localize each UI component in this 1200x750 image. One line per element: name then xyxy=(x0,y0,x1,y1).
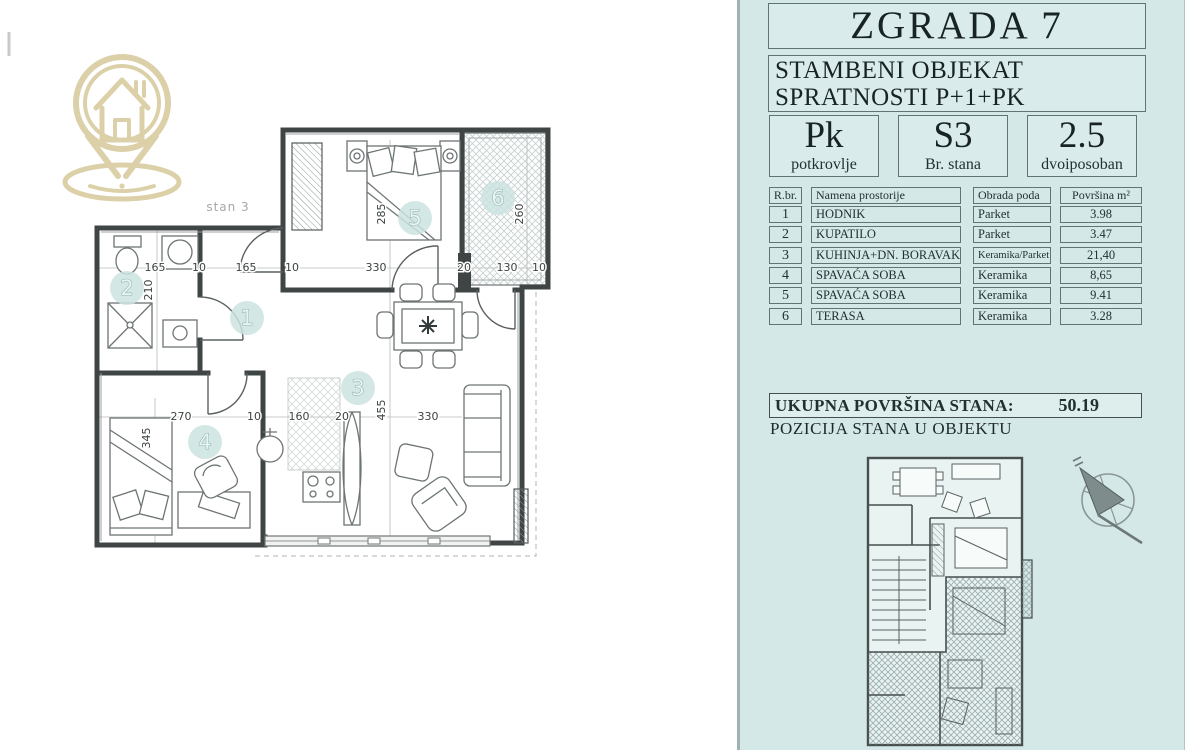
room-marker-number: 6 xyxy=(491,186,504,210)
legend-row-area-3: 21,40 xyxy=(1060,247,1142,264)
bedroom4-furniture xyxy=(110,418,250,535)
legend-row-name-6: TERASA xyxy=(811,308,961,325)
building-subtitle-box: STAMBENI OBJEKAT SPRATNOSTI P+1+PK xyxy=(768,55,1146,112)
stat-room-count-value: 2.5 xyxy=(1028,116,1136,156)
dimension-label-345: 345 xyxy=(140,428,153,449)
pillar-hatched xyxy=(514,489,528,543)
dimension-label-165: 165 xyxy=(145,261,166,274)
legend-header-namena: Namena prostorije xyxy=(811,187,961,204)
room-marker-number: 5 xyxy=(408,206,421,230)
room-markers: 123456 xyxy=(110,181,515,459)
stat-floor-label: potkrovlje xyxy=(770,156,878,173)
dimension-label-330: 330 xyxy=(418,410,439,423)
dimension-lines xyxy=(97,135,548,543)
dimension-label-10: 10 xyxy=(247,410,261,423)
legend-header-obrada: Obrada poda xyxy=(973,187,1051,204)
legend-row-name-5: SPAVAĆA SOBA xyxy=(811,287,961,304)
stat-apartment-number: S3 Br. stana xyxy=(898,115,1008,177)
room-marker-2: 2 xyxy=(110,271,144,305)
kitchen-tile-floor xyxy=(288,378,340,470)
legend-row-num-6: 6 xyxy=(769,308,802,325)
legend-row-num-3: 3 xyxy=(769,247,802,264)
position-label: POZICIJA STANA U OBJEKTU xyxy=(770,419,1012,439)
dimension-label-20: 20 xyxy=(335,410,349,423)
legend-row-area-6: 3.28 xyxy=(1060,308,1142,325)
dimension-label-260: 260 xyxy=(513,204,526,225)
terrace-area xyxy=(464,133,546,285)
legend-row-area-2: 3.47 xyxy=(1060,226,1142,243)
building-title-box: ZGRADA 7 xyxy=(768,3,1146,49)
balcony-window xyxy=(265,536,490,546)
dimension-label-10: 10 xyxy=(532,261,546,274)
legend-row-num-4: 4 xyxy=(769,267,802,284)
legend-row-num-5: 5 xyxy=(769,287,802,304)
total-area-value: 50.19 xyxy=(1059,395,1100,416)
dimension-label-285: 285 xyxy=(375,204,388,225)
legend-row-floor-3: Keramika/Parket xyxy=(973,247,1051,264)
building-title: ZGRADA 7 xyxy=(769,4,1145,48)
bedroom5-furniture xyxy=(347,141,460,240)
legend-row-floor-5: Keramika xyxy=(973,287,1051,304)
roof-overhang-dashed xyxy=(255,290,536,556)
legend-row-area-1: 3.98 xyxy=(1060,206,1142,223)
dimension-label-160: 160 xyxy=(289,410,310,423)
dimension-label-165: 165 xyxy=(236,261,257,274)
agency-logo-house-pin-icon xyxy=(65,57,179,199)
legend-row-area-4: 8,65 xyxy=(1060,267,1142,284)
column xyxy=(458,253,471,290)
wall-inner-lines xyxy=(101,134,518,541)
living-furniture xyxy=(377,284,510,535)
neighbor-unit-text: stan 3 xyxy=(206,200,249,214)
dimension-labels: 1651016510330201301027010160203302102852… xyxy=(140,204,546,449)
main-floor-plan xyxy=(97,130,548,556)
dimension-label-10: 10 xyxy=(192,261,206,274)
neighbor-unit-label: stan 3 xyxy=(206,200,249,214)
room-marker-number: 1 xyxy=(240,306,253,330)
legend-row-name-3: KUHINJA+DN. BORAVAK xyxy=(811,247,961,264)
dimension-label-270: 270 xyxy=(171,410,192,423)
legend-row-floor-2: Parket xyxy=(973,226,1051,243)
stat-floor-value: Pk xyxy=(770,116,878,156)
total-area-box: UKUPNA POVRŠINA STANA: 50.19 xyxy=(769,393,1142,418)
building-subtitle-line2: SPRATNOSTI P+1+PK xyxy=(775,84,1145,111)
bathroom-fixtures xyxy=(108,236,198,348)
stat-room-count-label: dvoiposoban xyxy=(1028,156,1136,173)
room-marker-number: 3 xyxy=(351,376,364,400)
total-area-label: UKUPNA POVRŠINA STANA: xyxy=(770,396,1014,416)
room-marker-number: 2 xyxy=(120,276,133,300)
dimension-label-330: 330 xyxy=(366,261,387,274)
doors xyxy=(200,228,515,414)
wardrobe-hatched xyxy=(292,143,322,230)
legend-row-num-1: 1 xyxy=(769,206,802,223)
legend-header-rbr: R.br. xyxy=(769,187,802,204)
walls xyxy=(97,130,548,545)
room-marker-4: 4 xyxy=(188,425,222,459)
dimension-label-210: 210 xyxy=(142,280,155,301)
stat-room-count: 2.5 dvoiposoban xyxy=(1027,115,1137,177)
legend-row-floor-1: Parket xyxy=(973,206,1051,223)
legend-row-floor-4: Keramika xyxy=(973,267,1051,284)
room-marker-6: 6 xyxy=(481,181,515,215)
dimension-label-130: 130 xyxy=(497,261,518,274)
legend-row-floor-6: Keramika xyxy=(973,308,1051,325)
room-marker-5: 5 xyxy=(398,201,432,235)
stat-apartment-number-label: Br. stana xyxy=(899,156,1007,173)
room-marker-number: 4 xyxy=(198,430,211,454)
dimension-label-455: 455 xyxy=(375,400,388,421)
legend-row-name-1: HODNIK xyxy=(811,206,961,223)
info-panel: ZGRADA 7 STAMBENI OBJEKAT SPRATNOSTI P+1… xyxy=(737,0,1185,750)
legend-header-povrsina: Površina m² xyxy=(1060,187,1142,204)
stat-floor: Pk potkrovlje xyxy=(769,115,879,177)
legend-row-num-2: 2 xyxy=(769,226,802,243)
legend-row-name-4: SPAVAĆA SOBA xyxy=(811,267,961,284)
room-marker-3: 3 xyxy=(341,371,375,405)
dimension-label-10: 10 xyxy=(285,261,299,274)
kitchen-furniture xyxy=(257,412,361,525)
legend-row-area-5: 9.41 xyxy=(1060,287,1142,304)
stat-apartment-number-value: S3 xyxy=(899,116,1007,156)
room-marker-1: 1 xyxy=(230,301,264,335)
dimension-label-20: 20 xyxy=(457,261,471,274)
legend-row-name-2: KUPATILO xyxy=(811,226,961,243)
building-subtitle-line1: STAMBENI OBJEKAT xyxy=(775,57,1145,84)
